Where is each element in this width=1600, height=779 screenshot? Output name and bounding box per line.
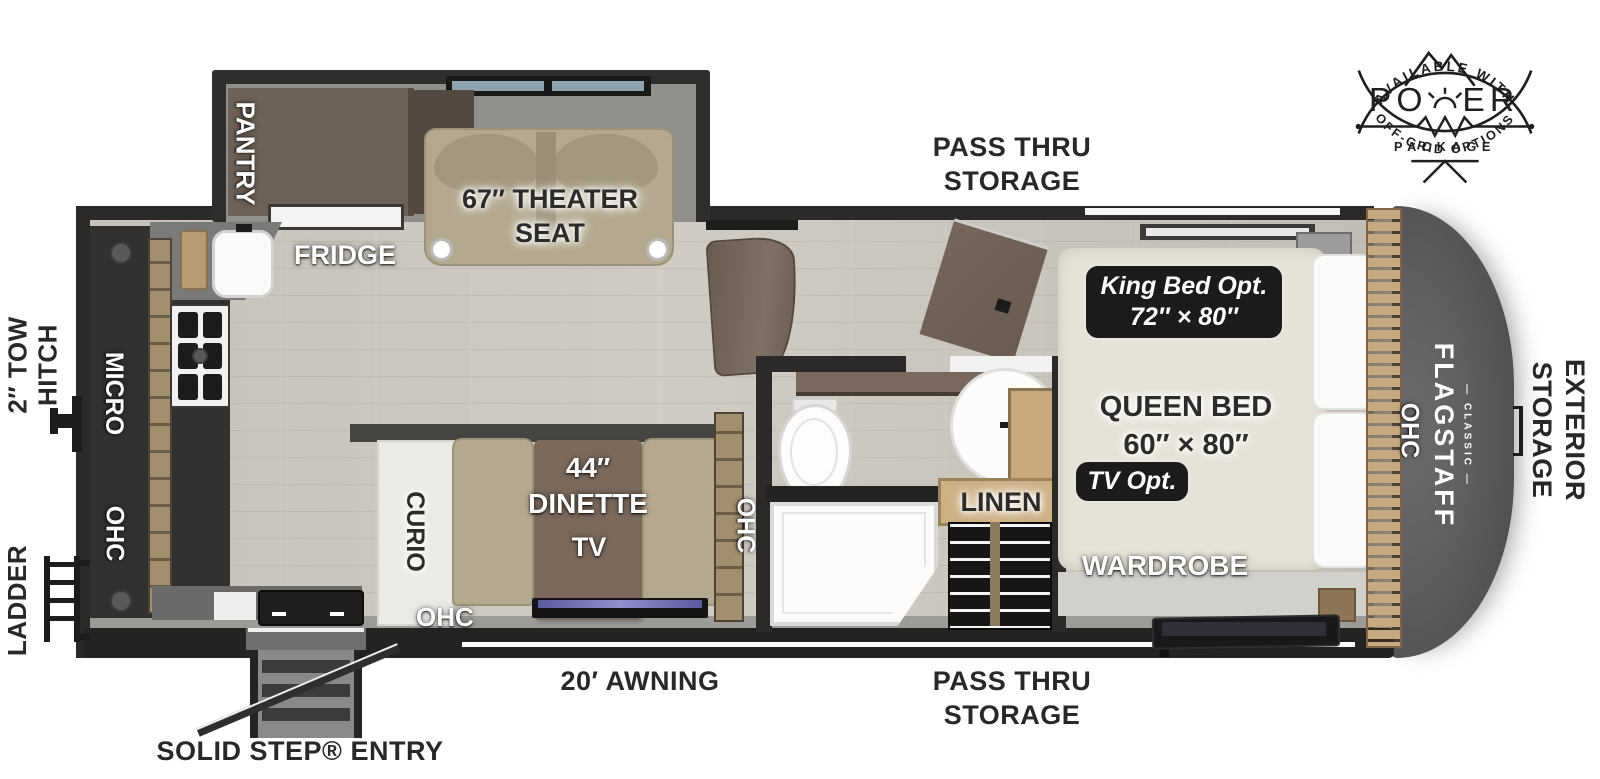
dinette-line2: DINETTE — [503, 486, 673, 522]
ohc-front-label: OHC — [1392, 388, 1426, 472]
ladder-rung-1 — [44, 562, 80, 567]
badge-word-package: PACKAGE — [1394, 139, 1496, 154]
divider-dot-right — [1529, 124, 1534, 129]
queen-bed-line2: 60″ × 80″ — [1088, 426, 1284, 464]
pass-thru-storage-label-bottom: PASS THRU STORAGE — [877, 664, 1147, 732]
brand-series-label: — CLASSIC — — [1456, 370, 1478, 500]
badge-word-power-left: PO — [1369, 82, 1428, 119]
pantry-shelf-slot — [268, 204, 404, 230]
range-lid-rear — [110, 242, 132, 264]
entry-landing — [214, 592, 256, 620]
ohc-kitchen-label: OHC — [96, 476, 132, 591]
solid-step-entry-label: SOLID STEP® ENTRY — [150, 736, 450, 767]
power-package-badge: AVAILABLE WITH OFF-GRID OPTIONS PO ER PA… — [1340, 2, 1550, 202]
pillow-bottom — [1312, 412, 1374, 568]
kitchen-cabinet-faces — [148, 238, 172, 614]
latch-tip-top — [1513, 406, 1523, 409]
ladder-rung-4 — [44, 616, 80, 621]
linen-label: LINEN — [961, 487, 1042, 518]
stove-knob — [192, 348, 208, 364]
badge-word-power-right: ER — [1462, 82, 1519, 119]
bedroom-tv-screen — [1162, 622, 1326, 636]
ladder-mount-top — [80, 560, 90, 566]
griddle-dot-left — [272, 612, 286, 616]
pillow-top — [1312, 254, 1374, 410]
tow-hitch-line2: HITCH — [33, 316, 63, 413]
tow-hitch-line1: 2″ TOW — [3, 316, 33, 413]
pass-thru-top-line1: PASS THRU — [877, 130, 1147, 164]
cutting-board — [180, 230, 208, 290]
pass-thru-bottom-line1: PASS THRU — [877, 664, 1147, 698]
queen-bed-label: QUEEN BED 60″ × 80″ — [1088, 388, 1284, 464]
king-bed-line1: King Bed Opt. — [1086, 271, 1282, 302]
tow-hitch-receiver — [56, 414, 76, 428]
floorplan-canvas: AVAILABLE WITH OFF-GRID OPTIONS PO ER PA… — [0, 0, 1600, 779]
entry-door-header — [706, 220, 798, 230]
medicine-cabinet — [1008, 388, 1056, 482]
linen-wire-shelves — [948, 522, 1052, 630]
step-tread-3 — [262, 708, 350, 721]
exterior-storage-latch-icon — [1519, 408, 1523, 456]
latch-tip-bottom — [1513, 453, 1523, 456]
tv-option-badge: TV Opt. — [1076, 462, 1188, 501]
ohc-dinette-bottom-label: OHC — [416, 602, 474, 633]
sink-faucet — [236, 224, 252, 232]
griddle-tray — [258, 590, 364, 626]
pass-thru-storage-label-top: PASS THRU STORAGE — [877, 130, 1147, 198]
linen-shelf-post — [990, 522, 1000, 626]
king-bed-option-badge: King Bed Opt. 72″ × 80″ — [1086, 266, 1282, 338]
exterior-storage-line1: EXTERIOR — [1558, 359, 1591, 501]
linen-cabinet: LINEN — [938, 478, 1064, 526]
tv-screen-glint — [538, 600, 702, 608]
theater-seat-label: 67″ THEATER SEAT — [428, 182, 672, 250]
exterior-storage-label: EXTERIOR STORAGE — [1518, 340, 1598, 520]
sun-icon — [1429, 88, 1462, 108]
awning-label: 20′ AWNING — [530, 666, 750, 697]
tow-hitch-tip — [50, 408, 58, 434]
exterior-storage-line2: STORAGE — [1525, 359, 1558, 501]
kitchen-sink — [212, 230, 274, 298]
theater-seat-line2: SEAT — [428, 216, 672, 250]
dinette-line1: 44″ — [503, 450, 673, 486]
ladder-rung-2 — [44, 580, 80, 585]
table-icon — [1411, 161, 1478, 182]
theater-seat-line1: 67″ THEATER — [428, 182, 672, 216]
pass-thru-bottom-line2: STORAGE — [877, 698, 1147, 732]
ladder-mount-bottom — [80, 634, 90, 640]
pantry-label: PANTRY — [228, 92, 262, 214]
bedroom-window-glass — [1146, 228, 1309, 236]
king-bed-line2: 72″ × 80″ — [1086, 302, 1282, 333]
bath-wall-top — [756, 356, 906, 372]
wardrobe-label: WARDROBE — [1060, 550, 1270, 582]
fridge-label: FRIDGE — [280, 240, 410, 271]
toilet-bowl-ring — [790, 418, 838, 486]
micro-label: MICRO — [96, 316, 132, 471]
ladder-rung-3 — [44, 598, 80, 603]
griddle-dot-right — [330, 612, 344, 616]
ladder-label: LADDER — [0, 535, 44, 665]
tv-label: TV — [558, 532, 620, 563]
range-lid-front — [110, 590, 132, 612]
queen-bed-line1: QUEEN BED — [1088, 388, 1284, 426]
pass-thru-top-line2: STORAGE — [877, 164, 1147, 198]
dinette-label: 44″ DINETTE — [503, 450, 673, 522]
bedroom-wall-window-strip — [1085, 208, 1340, 215]
shower-wall — [766, 486, 940, 502]
slideout-window-pane-right — [552, 81, 644, 91]
divider-dot-left — [1356, 124, 1361, 129]
curio-label: CURIO — [379, 452, 449, 610]
entry-threshold — [248, 628, 364, 632]
